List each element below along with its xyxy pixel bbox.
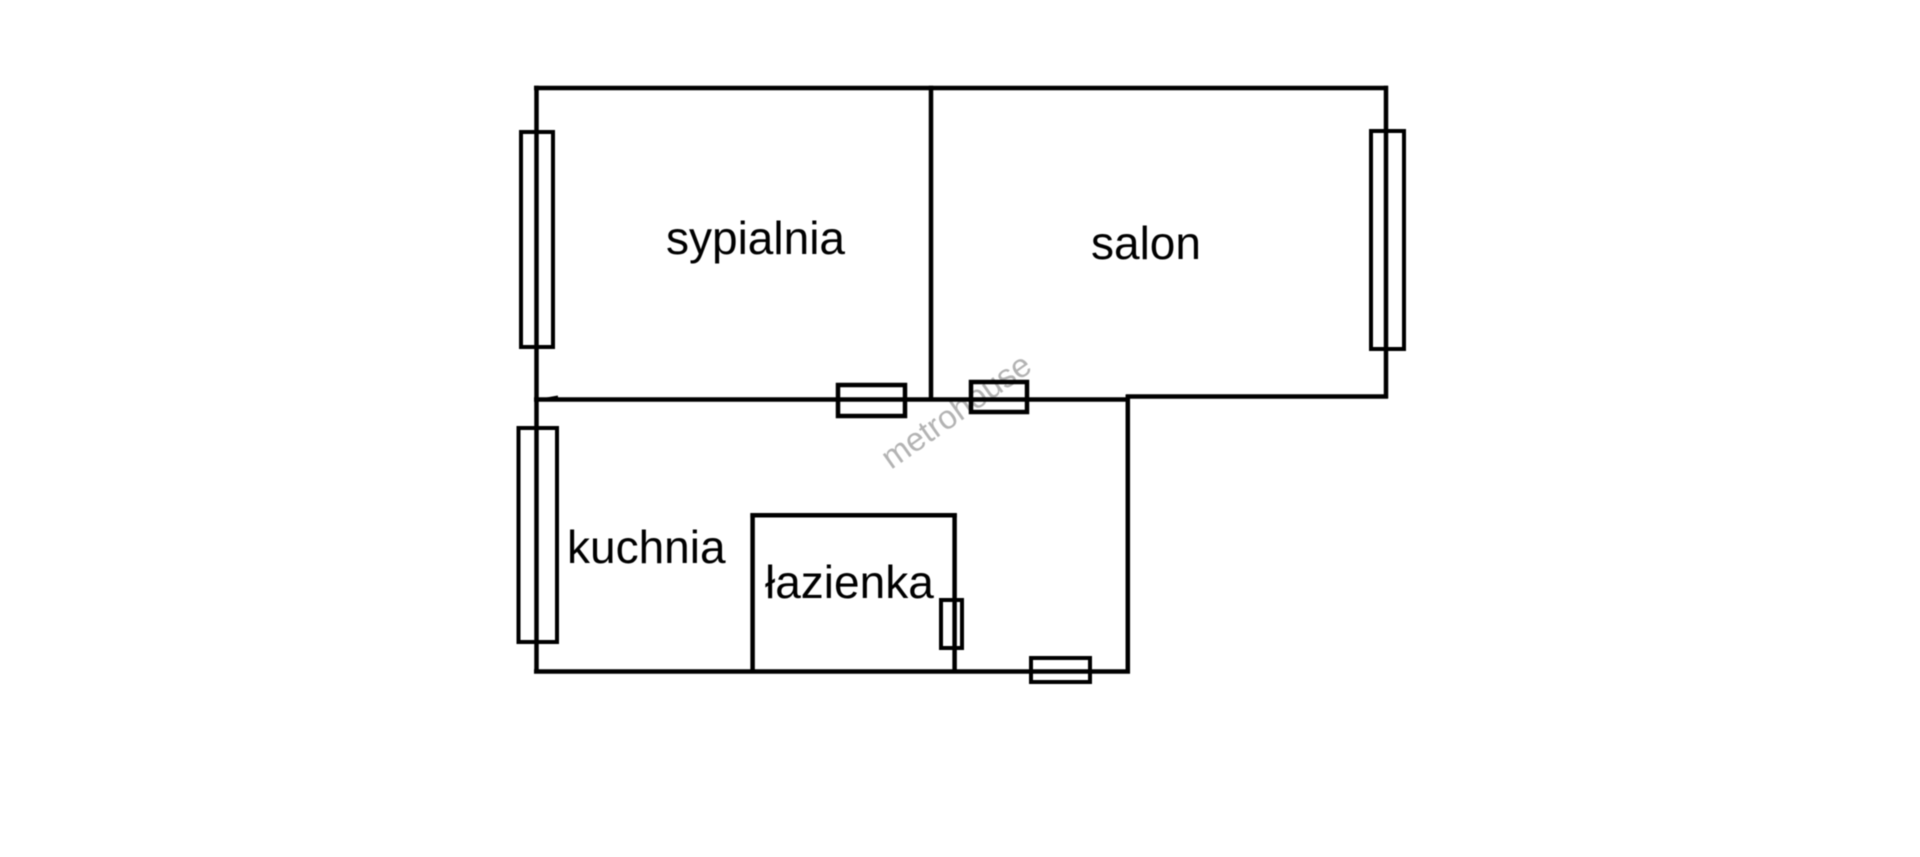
svg-text:kuchnia: kuchnia — [567, 521, 726, 573]
svg-text:sypialnia: sypialnia — [666, 212, 845, 264]
svg-text:salon: salon — [1091, 217, 1201, 269]
svg-text:łazienka: łazienka — [765, 556, 934, 608]
